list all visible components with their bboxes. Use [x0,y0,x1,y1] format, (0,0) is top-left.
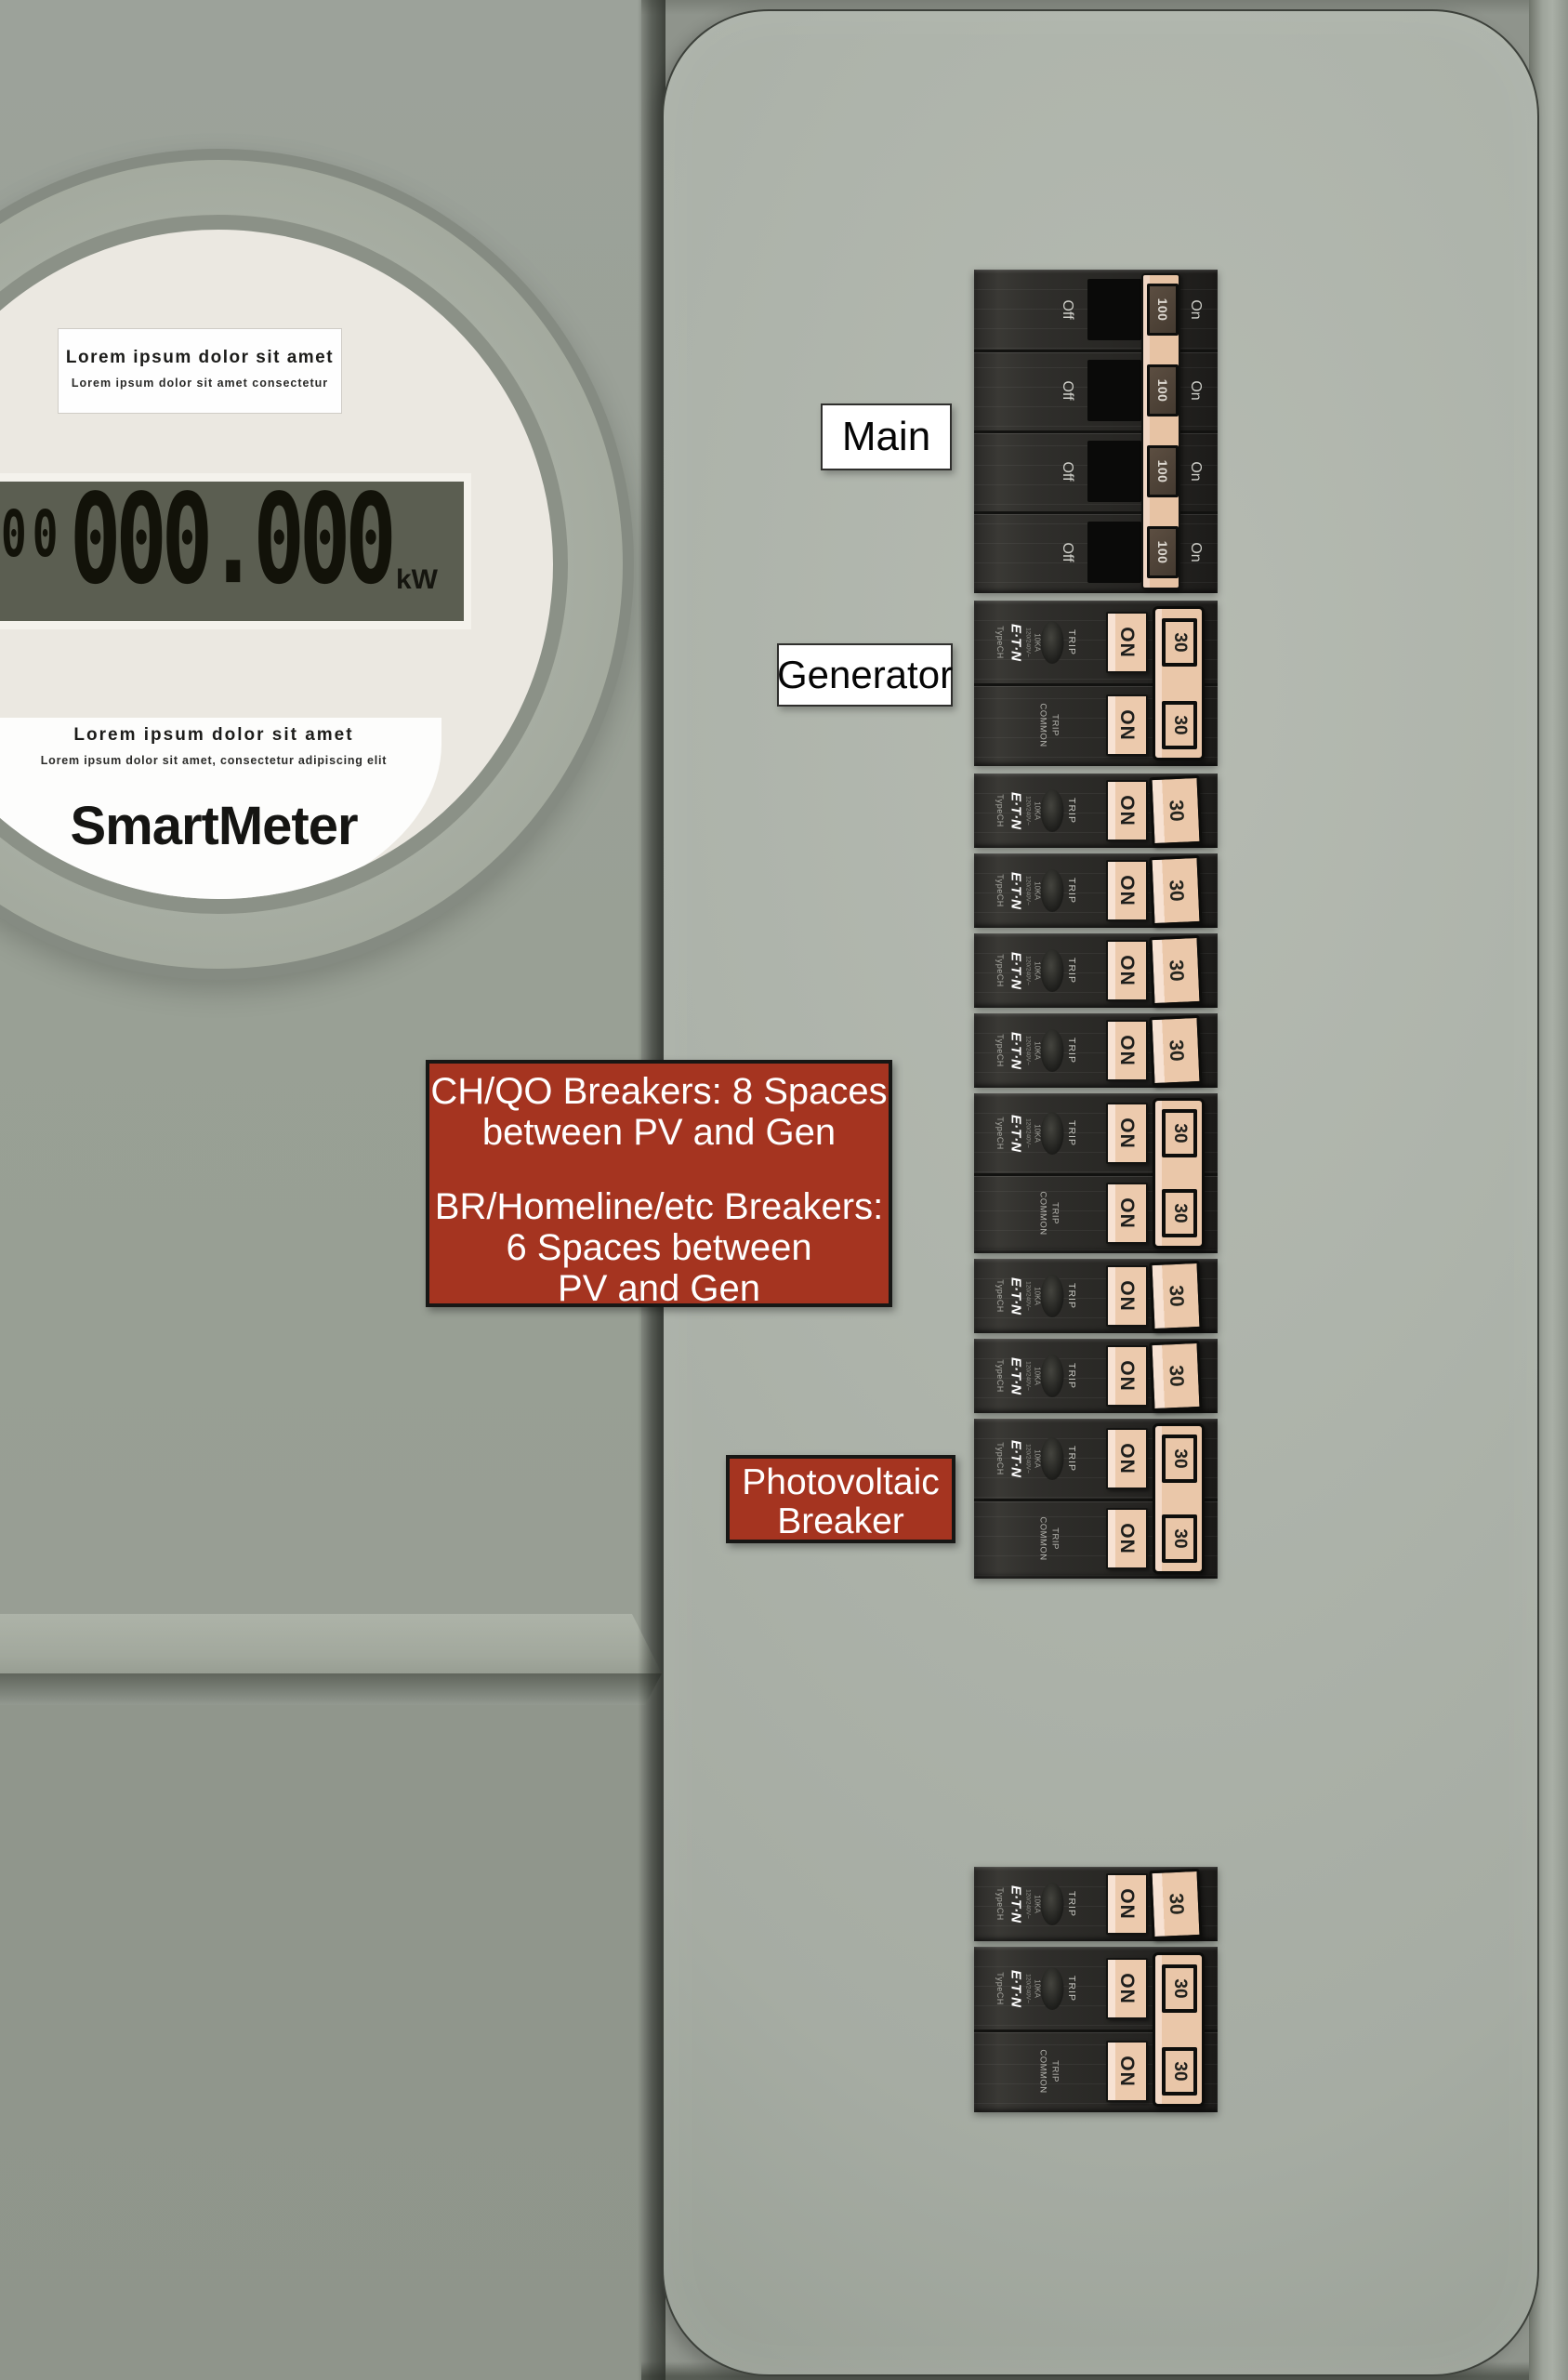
main-amp-rating: 100 [1147,284,1179,336]
test-button[interactable] [1041,1437,1064,1480]
breaker-handle-on[interactable]: ON [1106,1183,1148,1244]
test-button[interactable] [1041,1275,1064,1317]
amp-rating-tab: 30 [1149,1341,1202,1411]
note-line: CH/QO Breakers: 8 Spaces [429,1071,889,1112]
amp-rating-tab: 30 [1149,1869,1202,1939]
eaton-logo: E·T·N [1008,952,1024,989]
off-label: Off [1059,461,1075,481]
breaker-type-label: TypeCH [995,1034,1005,1067]
photovoltaic-breaker-label: Photovoltaic Breaker [726,1455,955,1543]
off-label: Off [1059,380,1075,400]
amp-rating: 30 [1162,1435,1197,1483]
breaker-handle-on[interactable]: ON [1106,2041,1148,2102]
off-label: Off [1059,299,1075,319]
photovoltaic-breaker-2pole: TypeCH E·T·N 120/240V~ 10KA TRIP COMMON … [974,1419,1218,1579]
breaker-type-label: TypeCH [995,1442,1005,1475]
note-line: PV and Gen [429,1268,889,1309]
eaton-logo: E·T·N [1008,1357,1024,1395]
eaton-logo: E·T·N [1008,872,1024,909]
common-trip-label: COMMON [1038,703,1048,747]
trip-label: TRIP [1066,958,1077,984]
test-button[interactable] [1041,1112,1064,1155]
breaker-type-label: TypeCH [995,874,1005,907]
single-breaker: TypeCH E·T·N 120/240V~ 10KA TRIP ON 30 [974,1339,1218,1413]
off-label: Off [1059,542,1075,562]
amp-rating: 30 [1162,2047,1197,2096]
common-trip-label: TRIP [1050,714,1061,736]
generator-label: Generator [777,643,953,707]
amp-rating: 30 [1162,701,1197,749]
single-breaker: TypeCH E·T·N 120/240V~ 10KA TRIP ON 30 [974,1013,1218,1088]
breaker-type-label: TypeCH [995,1359,1005,1393]
meter-bottom-subtitle: Lorem ipsum dolor sit amet, consectetur … [5,754,423,767]
on-label: On [1187,542,1204,562]
breaker-handle-on[interactable]: ON [1106,780,1148,841]
pole-separator [974,511,1218,514]
voltage-label: 120/240V~ [1025,1036,1032,1065]
main-amp-rating: 100 [1147,445,1179,497]
common-trip-label: COMMON [1038,1516,1048,1560]
breaker-type-label: TypeCH [995,1972,1005,2005]
trip-label: TRIP [1066,1363,1077,1389]
pv-label-line: Photovoltaic [730,1463,952,1502]
main-breaker-4pole: Off Off Off Off 100 100 100 100 On On On… [974,270,1218,593]
amp-rating-tab: 30 [1149,775,1202,846]
breaker-handle-on[interactable]: ON [1106,1873,1148,1935]
voltage-label: 120/240V~ [1025,1889,1032,1919]
breaker-handle-on[interactable]: ON [1106,1428,1148,1489]
note-spacer [429,1153,889,1186]
trip-label: TRIP [1066,1976,1077,2002]
breaker-handle-on[interactable]: ON [1106,1958,1148,2019]
breaker-type-label: TypeCH [995,954,1005,987]
main-switch-slot [1087,360,1141,421]
common-trip-label: TRIP [1050,1202,1061,1224]
eaton-logo: E·T·N [1008,1970,1024,2007]
generator-breaker-2pole: TypeCH E·T·N 120/240V~ 10KA TRIP COMMON … [974,601,1218,766]
trip-label: TRIP [1066,629,1077,655]
breaker-handle-on[interactable]: ON [1106,940,1148,1001]
test-button[interactable] [1041,621,1064,664]
note-line: BR/Homeline/etc Breakers: [429,1186,889,1227]
lcd-reading: 000.000 [70,468,397,612]
eaton-logo: E·T·N [1008,1115,1024,1152]
main-amp-rating: 100 [1147,364,1179,416]
wall-lower-section [0,1705,641,2380]
trip-label: TRIP [1066,1446,1077,1472]
trip-label: TRIP [1066,798,1077,824]
two-pole-breaker: TypeCH E·T·N 120/240V~ 10KA TRIP COMMON … [974,1093,1218,1253]
meter-top-label: Lorem ipsum dolor sit amet Lorem ipsum d… [58,328,342,414]
amp-rating: 30 [1162,1189,1197,1237]
voltage-label: 120/240V~ [1025,1281,1032,1311]
breaker-type-label: TypeCH [995,794,1005,827]
breaker-type-label: TypeCH [995,1117,1005,1150]
single-breaker: TypeCH E·T·N 120/240V~ 10KA TRIP ON 30 [974,773,1218,848]
meter-top-subtitle: Lorem ipsum dolor sit amet consectetur [59,377,341,390]
trip-label: TRIP [1066,1120,1077,1146]
meter-bottom-title: Lorem ipsum dolor sit amet [5,725,423,746]
common-trip-label: COMMON [1038,1191,1048,1235]
lcd-unit-label: kW [396,564,438,596]
voltage-label: 120/240V~ [1025,796,1032,826]
trip-label: TRIP [1066,1038,1077,1064]
test-button[interactable] [1041,1883,1064,1925]
test-button[interactable] [1041,1029,1064,1072]
single-breaker: TypeCH E·T·N 120/240V~ 10KA TRIP ON 30 [974,1867,1218,1941]
trip-label: TRIP [1066,1283,1077,1309]
eaton-logo: E·T·N [1008,1277,1024,1315]
test-button[interactable] [1041,789,1064,832]
main-switch-slot [1087,279,1141,340]
breaker-handle-on[interactable]: ON [1106,1103,1148,1164]
on-label: On [1187,380,1204,400]
breaker-handle-on[interactable]: ON [1106,612,1148,673]
lcd-small-digits: 00 [1,496,68,572]
on-label: On [1187,299,1204,319]
pv-label-line: Breaker [730,1502,952,1541]
test-button[interactable] [1041,1355,1064,1397]
breaker-type-label: TypeCH [995,1887,1005,1921]
voltage-label: 120/240V~ [1025,876,1032,906]
breaker-handle-on[interactable]: ON [1106,1265,1148,1327]
amp-rating-tab: 30 [1149,855,1202,926]
eaton-logo: E·T·N [1008,792,1024,829]
note-line: between PV and Gen [429,1112,889,1153]
voltage-label: 120/240V~ [1025,956,1032,985]
test-button[interactable] [1041,1967,1064,2010]
amp-rating-tab: 30 [1149,935,1202,1006]
eaton-logo: E·T·N [1008,1440,1024,1477]
eaton-logo: E·T·N [1008,624,1024,661]
common-trip-label: TRIP [1050,2060,1061,2082]
two-pole-breaker: TypeCH E·T·N 120/240V~ 10KA TRIP COMMON … [974,1947,1218,2112]
main-switch-slot [1087,522,1141,583]
voltage-label: 120/240V~ [1025,628,1032,657]
amp-rating: 30 [1162,1514,1197,1563]
single-breaker: TypeCH E·T·N 120/240V~ 10KA TRIP ON 30 [974,933,1218,1008]
note-line: 6 Spaces between [429,1227,889,1268]
amp-rating: 30 [1162,1109,1197,1157]
meter-brand: SmartMeter [5,795,423,857]
voltage-label: 120/240V~ [1025,1361,1032,1391]
wall-ledge [0,1614,662,1673]
eaton-logo: E·T·N [1008,1885,1024,1923]
amp-rating-tab: 30 [1149,1261,1202,1331]
common-trip-label: TRIP [1050,1527,1061,1550]
trip-label: TRIP [1066,878,1077,904]
trip-label: TRIP [1066,1891,1077,1917]
voltage-label: 120/240V~ [1025,1444,1032,1474]
common-trip-label: COMMON [1038,2049,1048,2093]
main-switch-slot [1087,441,1141,502]
wall-ledge-shadow [0,1673,662,1705]
breaker-handle-on[interactable]: ON [1106,1345,1148,1407]
eaton-logo: E·T·N [1008,1032,1024,1069]
breaker-handle-on[interactable]: ON [1106,1508,1148,1569]
breaker-spacing-note: CH/QO Breakers: 8 Spaces between PV and … [426,1060,892,1307]
amp-rating-tab: 30 [1149,1015,1202,1086]
breaker-handle-on[interactable]: ON [1106,1020,1148,1081]
single-breaker: TypeCH E·T·N 120/240V~ 10KA TRIP ON 30 [974,853,1218,928]
pole-separator [974,430,1218,433]
pole-separator [974,350,1218,352]
single-breaker: TypeCH E·T·N 120/240V~ 10KA TRIP ON 30 [974,1259,1218,1333]
test-button[interactable] [1041,869,1064,912]
main-amp-rating: 100 [1147,526,1179,578]
breaker-handle-on[interactable]: ON [1106,694,1148,756]
amp-rating: 30 [1162,618,1197,667]
meter-bottom-label: Lorem ipsum dolor sit amet Lorem ipsum d… [0,718,441,899]
voltage-label: 120/240V~ [1025,1118,1032,1148]
main-label: Main [821,403,952,470]
breaker-handle-on[interactable]: ON [1106,860,1148,921]
on-label: On [1187,461,1204,481]
voltage-label: 120/240V~ [1025,1974,1032,2003]
amp-rating: 30 [1162,1964,1197,2013]
breaker-type-label: TypeCH [995,1279,1005,1313]
breaker-type-label: TypeCH [995,626,1005,659]
meter-top-title: Lorem ipsum dolor sit amet [59,348,341,368]
test-button[interactable] [1041,949,1064,992]
